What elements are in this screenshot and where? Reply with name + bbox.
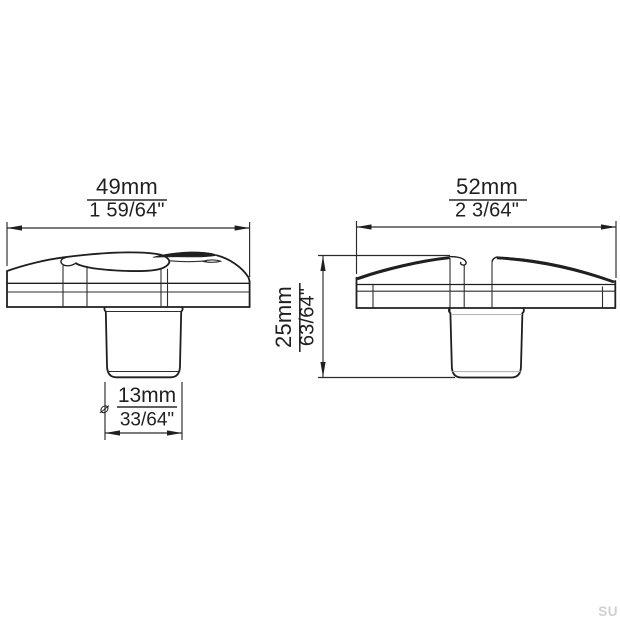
side-height-arrow-bottom — [320, 362, 325, 377]
side-stem-outline — [449, 308, 524, 377]
stem-arrow-right — [167, 430, 182, 435]
side-width-arrow-right — [601, 224, 616, 229]
stem-inch-label: 33/64" — [120, 410, 174, 431]
front-right-slope — [217, 255, 250, 307]
front-facet-lines — [63, 266, 168, 308]
watermark-text: SU — [598, 604, 618, 619]
front-underfin-line — [170, 261, 207, 262]
front-width-mm-label: 49mm — [96, 174, 158, 199]
front-hook-detail — [61, 258, 76, 266]
front-width-extension-lines — [7, 222, 250, 277]
side-facet-lines — [373, 285, 603, 309]
front-width-arrow-right — [235, 225, 250, 230]
side-notch-left — [450, 257, 467, 266]
stem-mm-label: 13mm — [118, 384, 176, 407]
front-knob-outline — [7, 252, 169, 307]
front-width-inch-label: 1 59/64" — [89, 200, 164, 222]
side-height-arrow-top — [320, 256, 325, 271]
side-right-rim — [497, 257, 615, 283]
front-width-arrow-left — [7, 225, 22, 230]
front-stem-outline — [104, 307, 182, 377]
diameter-symbol: ⌀ — [99, 400, 110, 417]
technical-drawing: 49mm 1 59/64" ⌀ 13mm 33/64" — [0, 0, 620, 620]
side-width-dimension: 52mm 2 3/64" — [357, 174, 617, 278]
stem-arrow-left — [105, 430, 120, 435]
side-height-extension-lines — [318, 256, 455, 378]
side-notch-right — [492, 257, 498, 262]
drawing-canvas: 49mm 1 59/64" ⌀ 13mm 33/64" — [0, 0, 620, 620]
stem-diameter-dimension: ⌀ 13mm 33/64" — [99, 382, 182, 440]
side-width-mm-label: 52mm — [456, 174, 518, 199]
side-height-dimension: 25mm 63/64" — [271, 256, 455, 378]
side-width-inch-label: 2 3/64" — [455, 200, 519, 222]
front-view — [7, 252, 250, 377]
side-height-mm-label: 25mm — [271, 286, 296, 348]
side-view — [357, 257, 616, 378]
side-width-arrow-left — [357, 224, 372, 229]
side-height-inch-label: 63/64" — [297, 288, 319, 346]
side-left-rim — [357, 257, 450, 280]
